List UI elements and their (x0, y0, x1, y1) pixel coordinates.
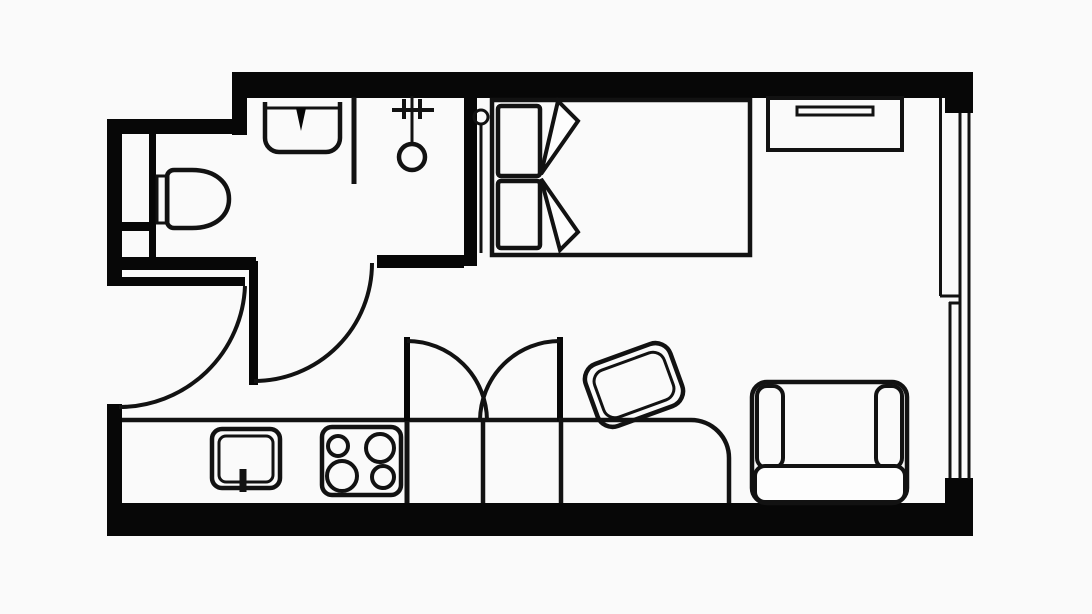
bottom-right-corner-wall (945, 478, 973, 536)
bathroom-bottom-wall-right (377, 255, 464, 268)
duct-divider-line (117, 222, 156, 231)
bathroom-top-wall (107, 119, 247, 134)
sleeping-area (474, 98, 902, 255)
bathroom-door-swing-arc (254, 263, 372, 381)
wardrobe-door-arc-left (407, 341, 487, 420)
wardrobe-door-leaf-right (557, 337, 563, 421)
floor-plan-svg (0, 0, 1092, 614)
floor-plan-canvas (0, 0, 1092, 614)
top-right-corner-wall (945, 72, 973, 113)
bottom-wall (107, 503, 972, 536)
table-outline (561, 420, 729, 503)
bathroom-door-leaf (249, 261, 258, 385)
window-right-wall (940, 98, 969, 479)
kitchenette (122, 420, 560, 503)
armchair-armrest-left (757, 386, 783, 468)
duct-partition-line (149, 134, 156, 260)
entry-door-swing-arc (119, 286, 245, 407)
shower-head (399, 144, 425, 170)
blanket-fold-upper (541, 101, 578, 174)
wardrobe-door-leaf-left (404, 337, 410, 421)
work-table (561, 420, 729, 503)
bathroom-door (249, 261, 372, 385)
entry-door-leaf (111, 277, 245, 286)
chair-outer-frame (580, 339, 687, 432)
desk-drawer-pull (797, 107, 873, 115)
blanket-fold-lower (541, 179, 578, 250)
burner-bottom-left (327, 461, 357, 491)
desk-chair (580, 339, 687, 432)
wash-basin-drain-wedge (296, 108, 306, 131)
burner-top-right (366, 434, 394, 462)
burner-top-left (328, 436, 348, 456)
entry-door (111, 277, 245, 407)
armchair-seat-cushion (755, 466, 905, 502)
top-wall (232, 72, 945, 98)
bathroom-bottom-wall-left (115, 257, 256, 270)
burner-bottom-right (372, 466, 394, 488)
toilet-bowl (167, 170, 229, 228)
wardrobe-door-arc-right (480, 341, 560, 420)
pillow-bottom (498, 181, 540, 248)
bathroom (157, 96, 434, 228)
hand-shower (392, 96, 434, 170)
armchair (752, 382, 907, 503)
pillow-top (498, 106, 540, 176)
armchair-armrest-right (876, 386, 902, 468)
